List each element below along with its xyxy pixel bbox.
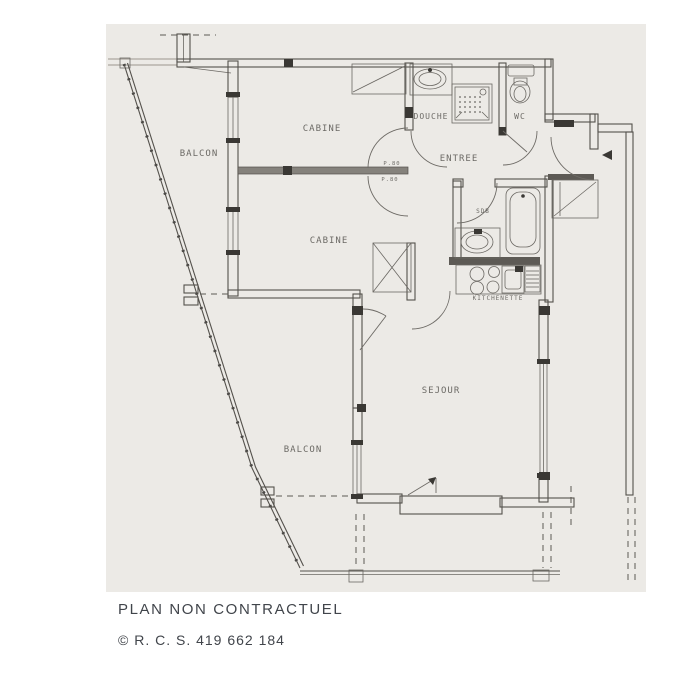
footer-disclaimer: PLAN NON CONTRACTUEL [118, 601, 343, 618]
label-sdb: SDB [476, 208, 490, 215]
label-door-p80-top: P.80 [383, 161, 400, 167]
label-entree: ENTREE [440, 154, 479, 164]
label-kitchenette: KITCHENETTE [473, 295, 524, 302]
label-balcon-top: BALCON [180, 149, 219, 159]
label-wc: WC [514, 112, 526, 121]
floor-plan-image: BALCON CABINE CABINE ENTREE DOUCHE WC SD… [0, 0, 700, 700]
label-door-p80-bottom: P.80 [381, 177, 398, 183]
label-balcon-bottom: BALCON [284, 445, 323, 455]
label-cabine-bottom: CABINE [310, 236, 349, 246]
floor-plan-page: BALCON CABINE CABINE ENTREE DOUCHE WC SD… [0, 0, 700, 700]
label-douche: DOUCHE [414, 112, 449, 121]
footer-registration: © R. C. S. 419 662 184 [118, 632, 285, 648]
label-sejour: SEJOUR [422, 386, 461, 396]
label-cabine-top: CABINE [303, 124, 342, 134]
